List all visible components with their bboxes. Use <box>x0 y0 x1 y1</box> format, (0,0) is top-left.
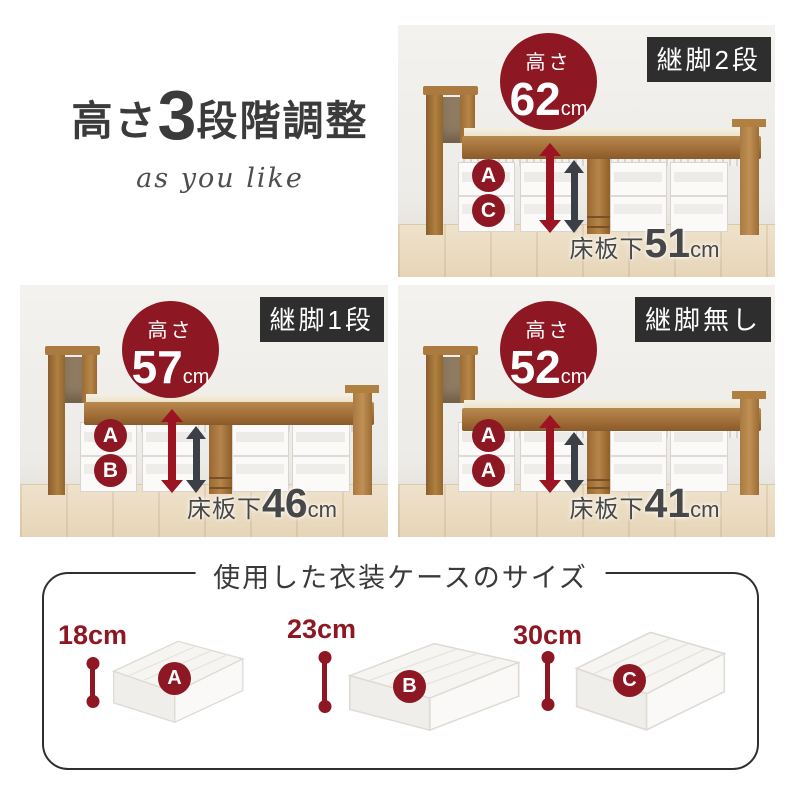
cases-section: 使用した衣装ケースのサイズ 18cm A 23cm B 30cm <box>42 572 759 770</box>
height-circle: 高さ 57cm <box>122 301 219 398</box>
bed-rail <box>462 136 761 159</box>
measure-line-icon <box>545 658 550 704</box>
page-title: 高さ3段階調整 <box>42 84 398 147</box>
footboard-cap <box>732 391 766 399</box>
headboard-cap <box>423 86 478 95</box>
case-letter-badge: A <box>94 419 127 452</box>
tagline: as you like <box>42 163 398 194</box>
measure-line-icon <box>322 658 327 706</box>
clearance-label: 床板下 <box>570 496 645 523</box>
headboard-post <box>426 89 443 235</box>
clearance-label: 床板下 <box>187 496 262 523</box>
product-infographic: 高さ3段階調整 as you like A C 高さ 62cm 継脚2段 床板下… <box>0 0 800 800</box>
clearance-unit: cm <box>690 237 719 262</box>
leg-config-badge: 継脚1段 <box>260 297 384 342</box>
height-circle: 高さ 62cm <box>500 33 597 130</box>
clearance-text: 床板下41cm <box>518 480 771 527</box>
height-label: 高さ <box>500 46 597 75</box>
title-prefix: 高さ <box>72 98 158 144</box>
case-letter-badge: A <box>158 662 191 695</box>
height-unit: cm <box>561 366 588 388</box>
height-label: 高さ <box>122 314 219 343</box>
headboard-post <box>48 349 65 495</box>
clearance-value: 51 <box>645 220 691 266</box>
measure-line-icon <box>90 664 95 701</box>
case-letter-badge: A <box>472 454 505 487</box>
title-number: 3 <box>158 76 197 154</box>
case-letter-badge: A <box>472 159 505 192</box>
storage-case-drawing <box>332 638 532 732</box>
clearance-text: 床板下51cm <box>518 220 771 267</box>
case-letter-badge: A <box>472 419 505 452</box>
footboard-post <box>740 124 759 235</box>
height-unit: cm <box>561 98 588 120</box>
title-suffix: 段階調整 <box>196 98 368 144</box>
bed-panel-1dan: A B 高さ 57cm 継脚1段 床板下46cm <box>20 285 388 537</box>
clearance-value: 46 <box>262 480 308 526</box>
clearance-unit: cm <box>690 497 719 522</box>
leg-config-badge: 継脚無し <box>635 297 771 342</box>
headboard-cap <box>45 346 100 355</box>
header: 高さ3段階調整 as you like <box>42 84 398 194</box>
storage-case-drawing <box>561 626 736 732</box>
height-circle: 高さ 52cm <box>500 301 597 398</box>
headboard-cap <box>423 346 478 355</box>
height-label: 高さ <box>500 314 597 343</box>
cases-section-title: 使用した衣装ケースのサイズ <box>195 556 606 595</box>
clearance-label: 床板下 <box>570 236 645 263</box>
case-letter-badge: C <box>472 194 505 227</box>
case-letter-badge: B <box>393 670 426 703</box>
footboard-cap <box>345 385 379 393</box>
case-letter-badge: C <box>613 664 646 697</box>
clearance-text: 床板下46cm <box>140 480 384 527</box>
headboard-post-inner <box>460 353 475 403</box>
bed-rail <box>462 408 761 431</box>
leg-config-badge: 継脚2段 <box>647 37 771 82</box>
bed-panel-2dan: A C 高さ 62cm 継脚2段 床板下51cm <box>398 25 775 277</box>
height-value: 52 <box>510 341 561 393</box>
clearance-value: 41 <box>645 480 691 526</box>
bed-panel-none: A A 高さ 52cm 継脚無し 床板下41cm <box>398 285 775 537</box>
footboard-cap <box>732 119 766 127</box>
height-value: 57 <box>132 341 183 393</box>
bed-rail <box>84 402 374 425</box>
clearance-unit: cm <box>308 497 337 522</box>
height-unit: cm <box>183 366 210 388</box>
height-value: 62 <box>510 73 561 125</box>
headboard-post <box>426 349 443 495</box>
case-letter-badge: B <box>94 454 127 487</box>
